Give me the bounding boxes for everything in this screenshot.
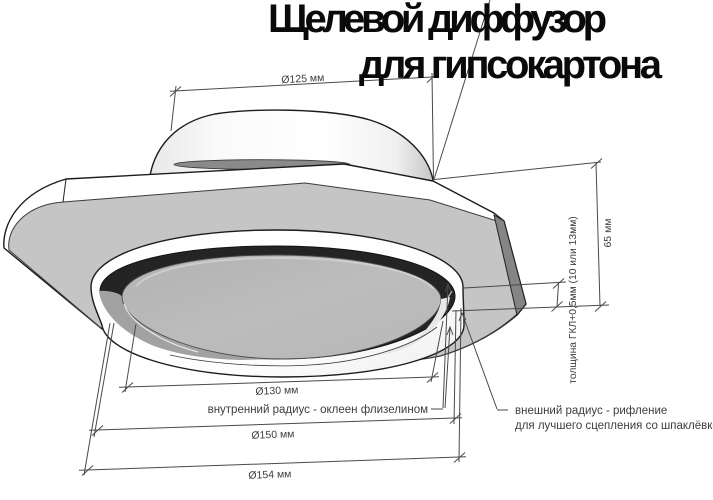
svg-text:65 мм: 65 мм [602, 218, 614, 247]
svg-text:Щелевой диффузор: Щелевой диффузор [268, 0, 607, 41]
svg-text:толщина ГКЛ+0,5мм (10 или 13мм: толщина ГКЛ+0,5мм (10 или 13мм) [568, 216, 579, 383]
svg-text:Ø125 мм: Ø125 мм [281, 72, 325, 86]
svg-text:для лучшего сцепления со шпакл: для лучшего сцепления со шпаклёвкой [515, 420, 713, 432]
svg-text:для гипсокартона: для гипсокартона [359, 43, 663, 87]
svg-text:внутренний радиус - оклеен фли: внутренний радиус - оклеен флизелином [208, 404, 429, 416]
svg-text:Ø130 мм: Ø130 мм [255, 384, 298, 397]
svg-text:Ø154 мм: Ø154 мм [248, 468, 291, 481]
svg-text:Ø150 мм: Ø150 мм [251, 428, 294, 441]
svg-text:внешний радиус - рифление: внешний радиус - рифление [515, 405, 667, 417]
